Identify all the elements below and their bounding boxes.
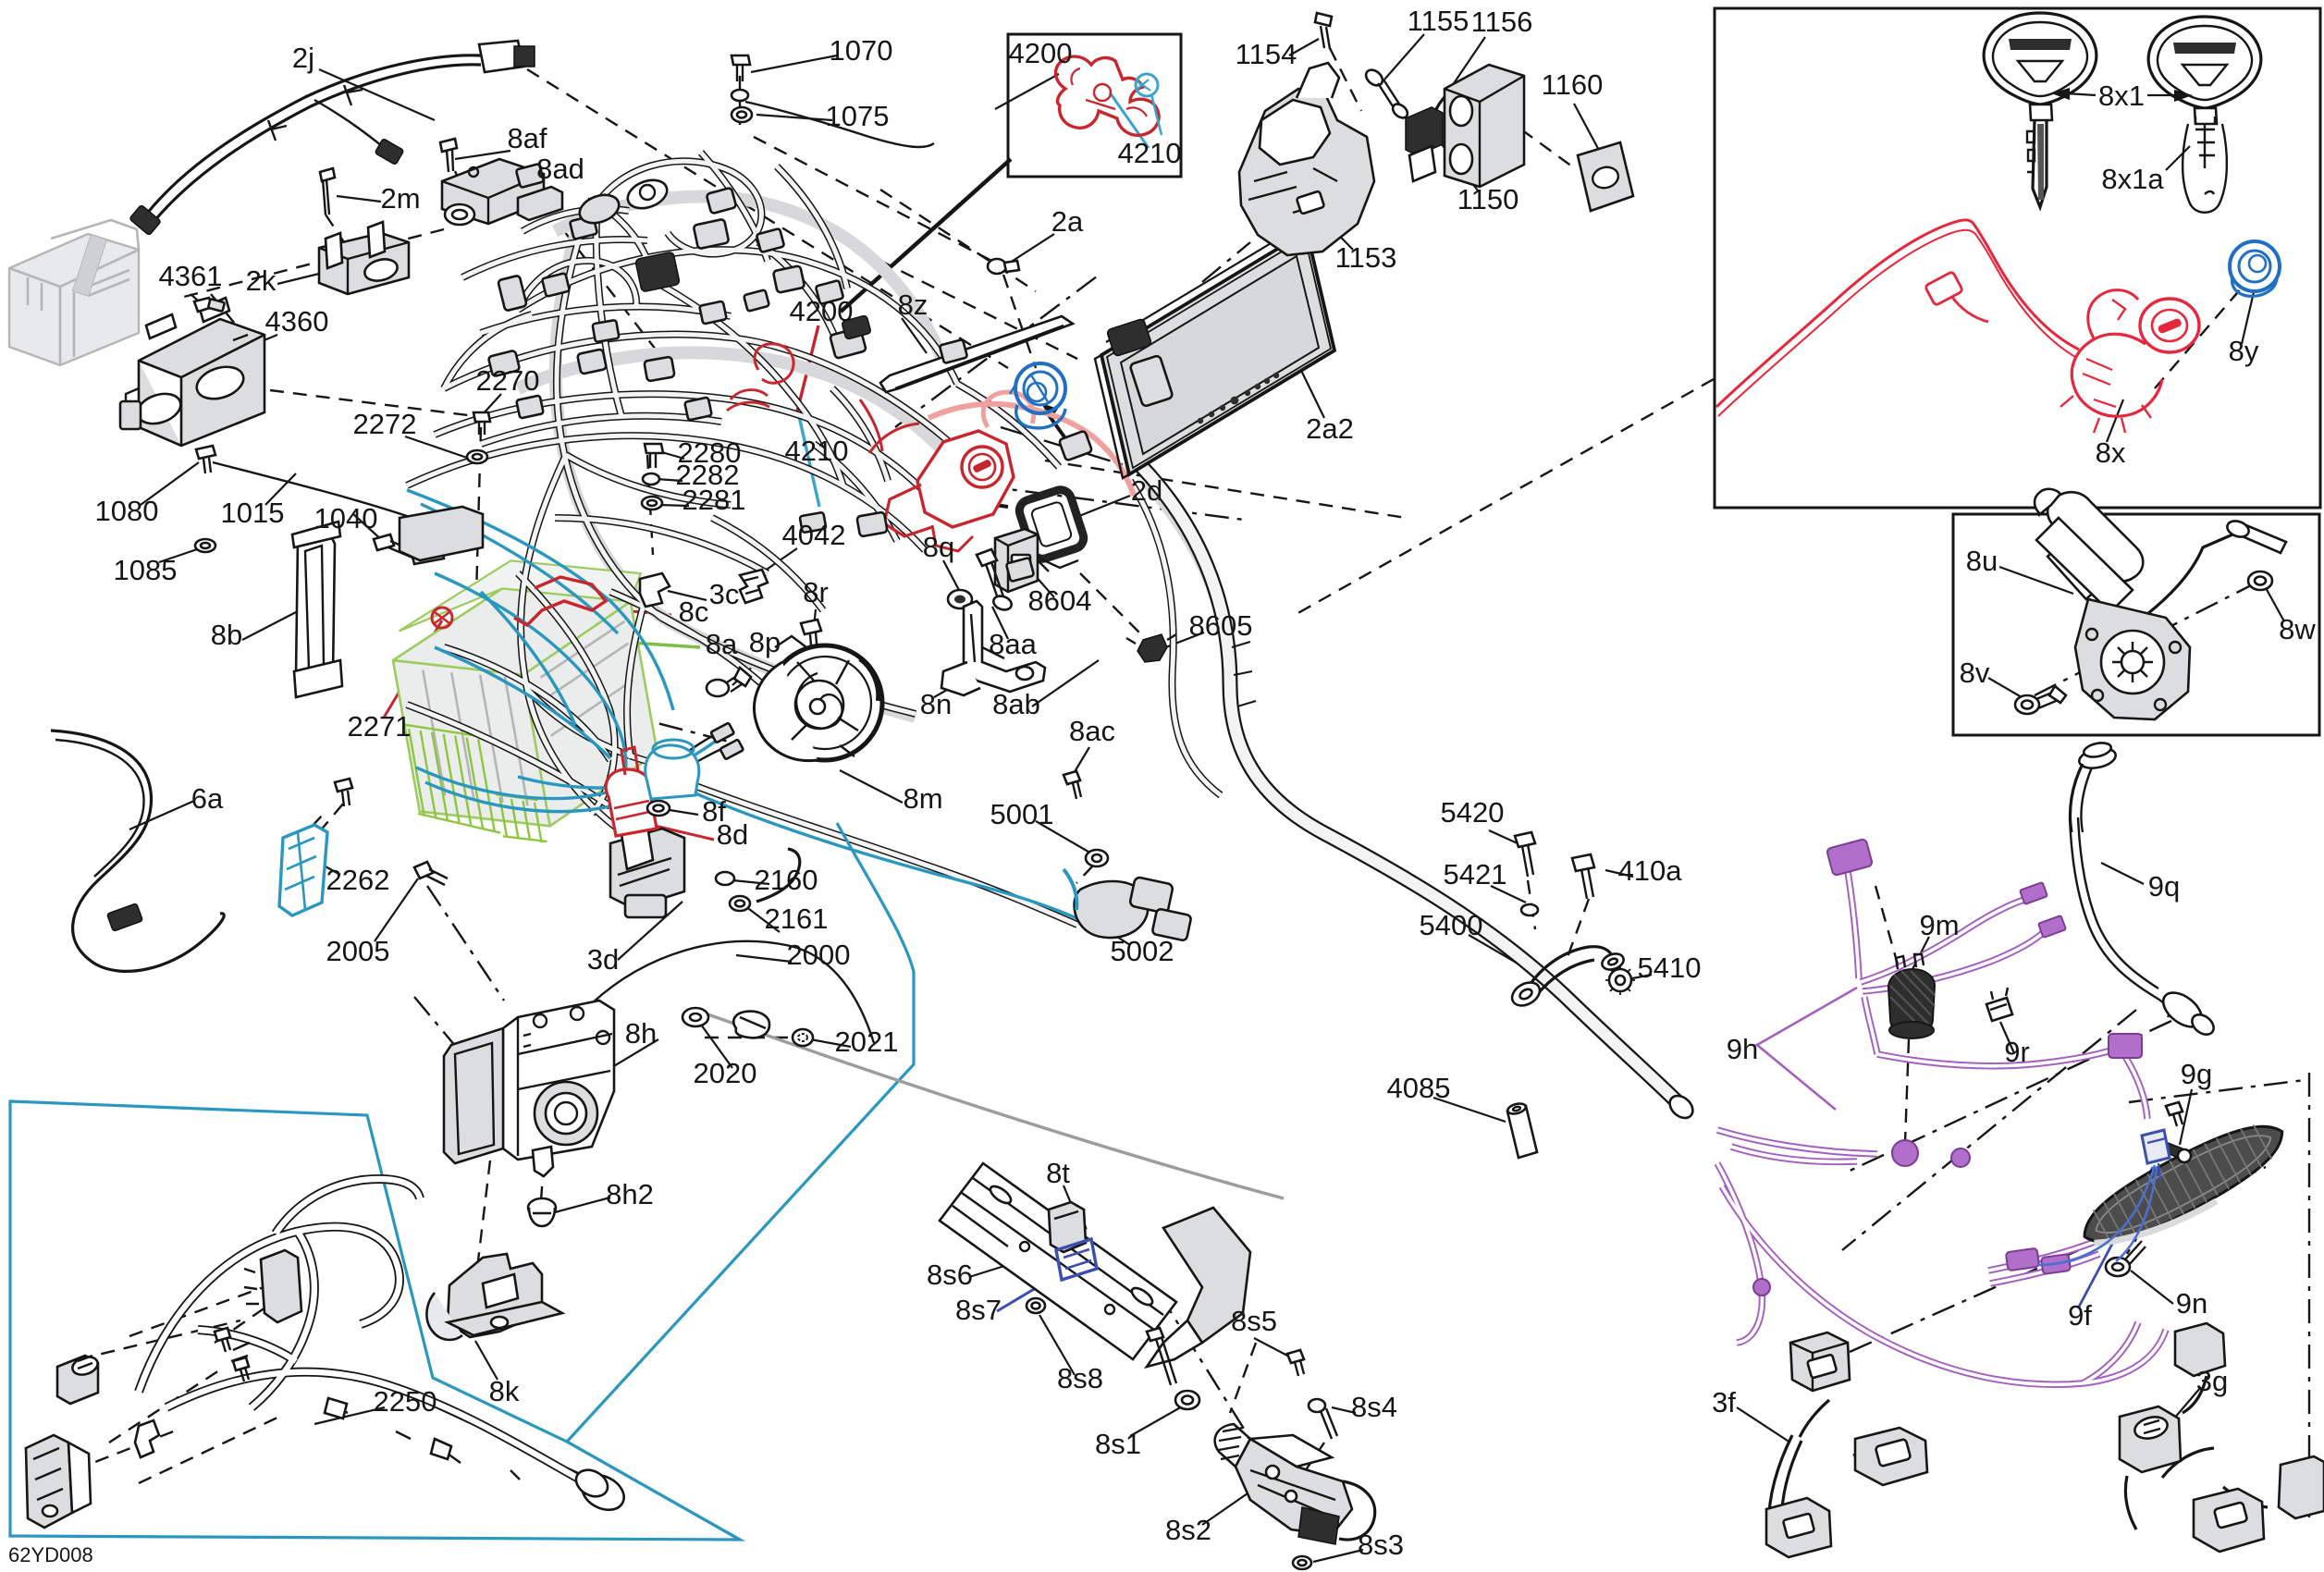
svg-text:1153: 1153: [1335, 241, 1397, 274]
svg-text:8s8: 8s8: [1057, 1362, 1103, 1394]
svg-text:410a: 410a: [1618, 854, 1683, 887]
svg-text:9g: 9g: [2181, 1058, 2212, 1090]
svg-text:4361: 4361: [159, 260, 223, 292]
svg-text:3d: 3d: [587, 943, 619, 976]
svg-text:1015: 1015: [221, 497, 285, 529]
svg-text:8s5: 8s5: [1231, 1305, 1277, 1337]
svg-text:1040: 1040: [314, 502, 378, 534]
svg-text:8af: 8af: [507, 122, 547, 154]
svg-text:9n: 9n: [2176, 1287, 2207, 1320]
svg-text:2262: 2262: [326, 864, 390, 896]
svg-text:8u: 8u: [1966, 545, 1998, 577]
svg-text:3g: 3g: [2196, 1365, 2228, 1397]
svg-text:2161: 2161: [765, 903, 829, 935]
svg-text:8q: 8q: [923, 531, 954, 563]
svg-text:8x1: 8x1: [2098, 80, 2145, 112]
svg-text:5421: 5421: [1444, 858, 1507, 890]
svg-text:8b: 8b: [211, 619, 242, 651]
svg-text:3f: 3f: [1712, 1386, 1736, 1418]
svg-text:8n: 8n: [920, 688, 952, 720]
svg-text:5410: 5410: [1638, 952, 1702, 984]
svg-text:8v: 8v: [1960, 657, 1990, 689]
svg-text:1156: 1156: [1471, 6, 1533, 38]
svg-text:8s3: 8s3: [1358, 1529, 1404, 1561]
svg-text:8x: 8x: [2096, 436, 2126, 469]
svg-text:2270: 2270: [476, 364, 540, 397]
svg-text:1150: 1150: [1457, 183, 1519, 215]
svg-text:2a2: 2a2: [1306, 412, 1354, 445]
svg-text:8r: 8r: [803, 576, 829, 608]
svg-text:2271: 2271: [348, 710, 412, 743]
svg-text:2005: 2005: [326, 935, 390, 967]
svg-text:2020: 2020: [694, 1057, 757, 1089]
svg-text:2j: 2j: [292, 42, 314, 74]
svg-text:5001: 5001: [990, 798, 1054, 830]
svg-text:9f: 9f: [2068, 1299, 2092, 1332]
svg-text:5002: 5002: [1111, 935, 1174, 967]
svg-text:62YD008: 62YD008: [8, 1543, 93, 1566]
svg-text:8605: 8605: [1189, 609, 1253, 642]
svg-text:1154: 1154: [1236, 38, 1297, 70]
svg-text:8w: 8w: [2279, 613, 2316, 645]
svg-text:4210: 4210: [785, 435, 849, 467]
svg-text:8t: 8t: [1046, 1157, 1070, 1189]
svg-text:6a: 6a: [191, 782, 224, 815]
svg-text:1155: 1155: [1408, 5, 1469, 37]
svg-text:4085: 4085: [1387, 1072, 1451, 1104]
svg-text:2m: 2m: [380, 182, 420, 215]
svg-text:8ac: 8ac: [1069, 715, 1115, 747]
svg-text:5400: 5400: [1420, 909, 1483, 941]
svg-text:2160: 2160: [755, 864, 818, 896]
svg-text:4200: 4200: [1009, 37, 1073, 69]
svg-text:8604: 8604: [1028, 584, 1092, 617]
svg-text:9q: 9q: [2148, 870, 2180, 903]
svg-text:4200: 4200: [790, 295, 854, 327]
svg-text:8x1a: 8x1a: [2101, 163, 2164, 195]
svg-text:2000: 2000: [787, 939, 851, 971]
svg-text:8h: 8h: [625, 1017, 657, 1050]
svg-text:9m: 9m: [1919, 909, 1959, 941]
svg-text:8y: 8y: [2229, 335, 2259, 367]
svg-text:2021: 2021: [835, 1025, 899, 1058]
svg-text:9h: 9h: [1727, 1033, 1758, 1065]
svg-text:1085: 1085: [114, 554, 178, 586]
svg-text:5420: 5420: [1441, 796, 1505, 829]
svg-text:2281: 2281: [682, 484, 746, 516]
svg-text:8s1: 8s1: [1095, 1428, 1141, 1460]
svg-text:8z: 8z: [898, 289, 928, 321]
svg-text:1080: 1080: [95, 495, 159, 527]
svg-text:8p: 8p: [749, 626, 781, 658]
svg-text:1070: 1070: [830, 34, 893, 67]
svg-text:2a: 2a: [1051, 205, 1084, 238]
svg-text:3c: 3c: [709, 578, 740, 610]
svg-text:8s4: 8s4: [1351, 1391, 1397, 1423]
svg-text:8c: 8c: [679, 596, 709, 628]
svg-text:8m: 8m: [903, 782, 942, 815]
svg-text:8ad: 8ad: [536, 153, 584, 185]
svg-text:4042: 4042: [782, 519, 846, 551]
svg-text:4360: 4360: [265, 305, 329, 338]
svg-text:2d: 2d: [1131, 474, 1162, 507]
svg-text:8aa: 8aa: [989, 628, 1037, 660]
svg-text:2k: 2k: [246, 264, 277, 297]
svg-text:8a: 8a: [706, 628, 738, 660]
svg-text:8s7: 8s7: [955, 1294, 1002, 1326]
svg-text:2272: 2272: [353, 408, 417, 440]
svg-text:1160: 1160: [1542, 68, 1604, 101]
svg-text:8k: 8k: [489, 1375, 520, 1407]
svg-text:1075: 1075: [826, 100, 890, 132]
svg-text:8ab: 8ab: [992, 688, 1040, 720]
svg-text:4210: 4210: [1118, 137, 1182, 169]
svg-text:8s2: 8s2: [1165, 1514, 1211, 1546]
svg-text:8h2: 8h2: [606, 1178, 654, 1210]
svg-text:8s6: 8s6: [927, 1259, 973, 1291]
svg-text:9r: 9r: [2004, 1036, 2030, 1068]
svg-text:2250: 2250: [374, 1385, 437, 1418]
svg-text:8d: 8d: [717, 818, 748, 851]
